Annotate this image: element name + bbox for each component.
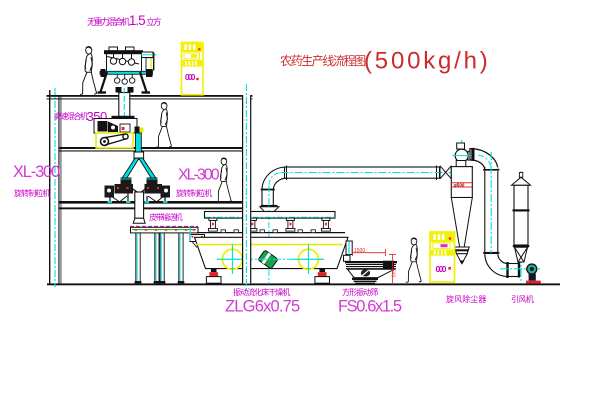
svg-text:皮带输送机: 皮带输送机 — [149, 212, 183, 222]
svg-text:方形振动筛: 方形振动筛 — [342, 287, 378, 297]
svg-text:引风机: 引风机 — [511, 294, 534, 304]
svg-text:振动流化床干燥机: 振动流化床干燥机 — [233, 287, 290, 297]
svg-text:ZLG6x0.75: ZLG6x0.75 — [225, 298, 300, 316]
svg-text:旋转制粒机: 旋转制粒机 — [176, 188, 212, 198]
svg-text:φ500: φ500 — [454, 183, 465, 188]
svg-text:旋风除尘器: 旋风除尘器 — [446, 294, 487, 304]
svg-text:旋转制粒机: 旋转制粒机 — [14, 188, 50, 198]
svg-text:XL-300: XL-300 — [178, 167, 220, 184]
svg-text:540: 540 — [390, 269, 396, 278]
svg-text:FS0.6x1.5: FS0.6x1.5 — [338, 298, 402, 316]
svg-text:农药生产线流程图: 农药生产线流程图 — [280, 53, 365, 68]
svg-text:(500kg/h): (500kg/h) — [364, 48, 491, 75]
svg-text:XL-300: XL-300 — [13, 163, 60, 181]
svg-text:1500: 1500 — [354, 248, 365, 254]
